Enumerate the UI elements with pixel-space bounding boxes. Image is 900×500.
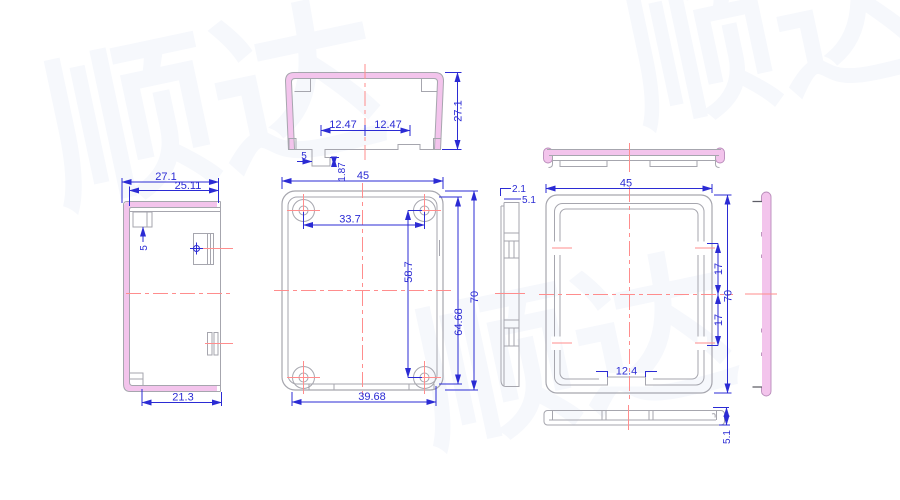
dim-inner-depth: 25.11 <box>175 180 202 192</box>
dim-hole-pitch-x: 33.7 <box>339 214 360 226</box>
dim-height: 27.1 <box>453 100 465 121</box>
rib <box>752 258 763 329</box>
rib <box>752 237 763 255</box>
upper-latch <box>504 233 519 258</box>
dim-width: 45 <box>620 178 632 190</box>
highlight-band <box>127 205 218 389</box>
watermark-text: 顺达 <box>611 0 900 155</box>
dim-width: 45 <box>357 170 369 182</box>
tab-left <box>560 161 607 167</box>
dim-inner-height: 64.68 <box>453 308 465 336</box>
rib <box>752 356 763 388</box>
view-lid-top-profile <box>544 143 725 172</box>
cad-drawing: 顺达 顺达 顺达 27.1 12.47 12.47 5 1.87 <box>0 0 900 500</box>
dim-hole-pitch-y: 58.7 <box>403 261 415 282</box>
bottom-tabs <box>309 384 434 390</box>
dim-depth: 5.1 <box>522 195 536 206</box>
outline-outer <box>124 202 221 392</box>
leader-wall <box>501 189 512 197</box>
dim-wall: 2.1 <box>512 184 526 195</box>
clip-crosshair-lines <box>190 243 203 255</box>
dim-bottom-width: 21.3 <box>172 392 193 404</box>
dim-slot-top: 17 <box>713 263 725 275</box>
view-lid-side <box>745 192 777 396</box>
dim-notch: 12.4 <box>616 366 637 378</box>
dim-boss: 5 <box>139 245 150 251</box>
dim-slot-bottom: 17 <box>713 314 725 326</box>
witness-line <box>304 212 425 229</box>
dim-inner-width: 39.68 <box>358 391 386 403</box>
rib <box>752 333 763 353</box>
drawing-canvas: 顺达 顺达 顺达 27.1 12.47 12.47 5 1.87 <box>0 0 900 500</box>
dim-depth: 5.1 <box>722 430 733 444</box>
view-left-side: 5 27.1 25.11 21.3 <box>122 171 233 406</box>
dim-height: 70 <box>469 291 481 303</box>
dim-tab-depth: 1.87 <box>337 162 348 182</box>
bottom-step <box>130 373 144 386</box>
dim-tab-right: 12.47 <box>374 119 402 131</box>
dim-tab-width: 5 <box>301 151 307 162</box>
rib <box>752 201 763 232</box>
dim-depth: 27.1 <box>155 171 176 183</box>
dim-height: 70 <box>723 290 735 302</box>
dim-tab-left: 12.47 <box>329 119 357 131</box>
tab-right <box>650 161 697 167</box>
corner-notch-right <box>422 79 438 92</box>
